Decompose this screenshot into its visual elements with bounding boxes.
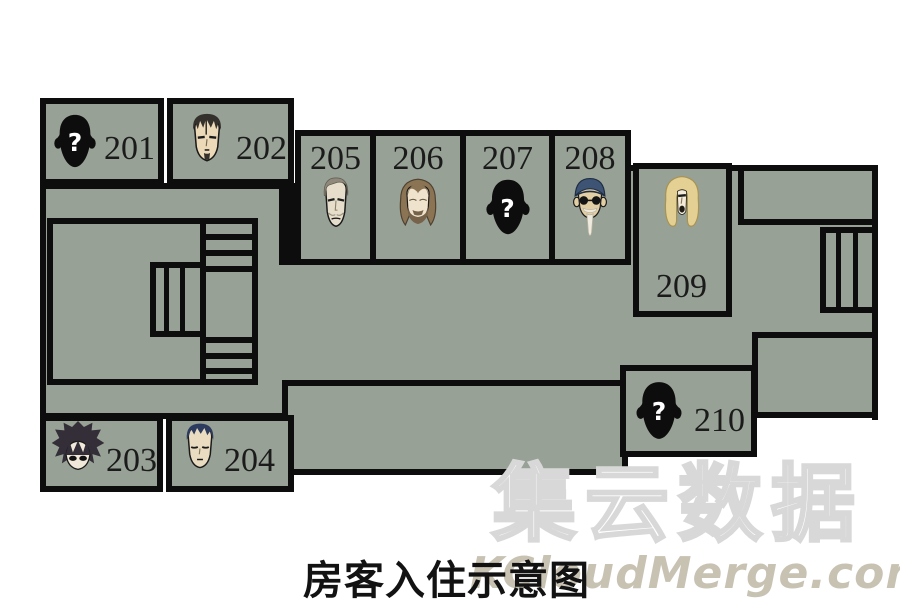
stair-step xyxy=(206,234,258,240)
question-mark: ? xyxy=(634,399,684,424)
room-number-208: 208 xyxy=(565,142,616,176)
avatar-room-201: ? xyxy=(52,110,98,172)
room-number-203: 203 xyxy=(106,444,157,478)
stair-step xyxy=(206,353,258,359)
right-stair-rail xyxy=(836,233,841,307)
room-205-cell: 205 xyxy=(301,136,370,259)
avatar-room-210: ? xyxy=(634,379,684,442)
navy-hair-man-icon xyxy=(178,420,222,477)
landing-rail xyxy=(180,268,185,331)
blonde-man-icon xyxy=(658,174,706,238)
avatar-room-206 xyxy=(391,176,445,241)
avatar-room-208 xyxy=(565,176,615,247)
watermark-line1: 集云数据 xyxy=(492,462,864,546)
top-right-room xyxy=(738,165,878,225)
avatar-room-207: ? xyxy=(484,176,532,238)
question-mark: ? xyxy=(52,130,98,155)
avatar-room-209 xyxy=(658,174,706,238)
bottom-right-room xyxy=(752,332,878,418)
bearded-man-icon xyxy=(391,176,445,236)
wall-connector xyxy=(279,183,295,265)
question-mark: ? xyxy=(484,196,532,221)
avatar-room-202 xyxy=(184,110,230,170)
room-207-cell: 207 ? xyxy=(466,136,549,259)
room-206-cell: 206 xyxy=(376,136,460,259)
right-stair-rail xyxy=(853,233,858,307)
room-number-210: 210 xyxy=(694,404,745,438)
avatar-room-203 xyxy=(50,419,106,479)
stair-landing xyxy=(150,262,206,337)
stair-step xyxy=(200,266,258,272)
avatar-room-204 xyxy=(178,420,222,477)
right-staircase xyxy=(820,227,878,313)
gaunt-man-icon xyxy=(314,176,358,234)
landing-rail xyxy=(164,268,169,331)
stair-step xyxy=(206,250,258,256)
wall-left-exterior xyxy=(40,183,46,419)
room-208-cell: 208 xyxy=(555,136,625,259)
corridor xyxy=(283,263,630,383)
room-number-209: 209 xyxy=(656,270,707,304)
room-number-206: 206 xyxy=(393,142,444,176)
room-number-207: 207 xyxy=(482,142,533,176)
floorplan-canvas: ? 201 202 205 xyxy=(0,0,900,610)
room-number-205: 205 xyxy=(310,142,361,176)
shaggy-hair-man-icon xyxy=(50,419,106,479)
stair-step xyxy=(200,337,258,343)
room-number-204: 204 xyxy=(224,444,275,478)
room-number-201: 201 xyxy=(104,132,155,166)
avatar-room-205 xyxy=(314,176,358,239)
stair-step xyxy=(206,368,258,374)
diagram-caption: 房客入住示意图 xyxy=(303,548,590,606)
room-number-202: 202 xyxy=(236,132,287,166)
man-slicked-hair-icon xyxy=(184,110,230,170)
old-man-cap-icon xyxy=(565,176,615,242)
